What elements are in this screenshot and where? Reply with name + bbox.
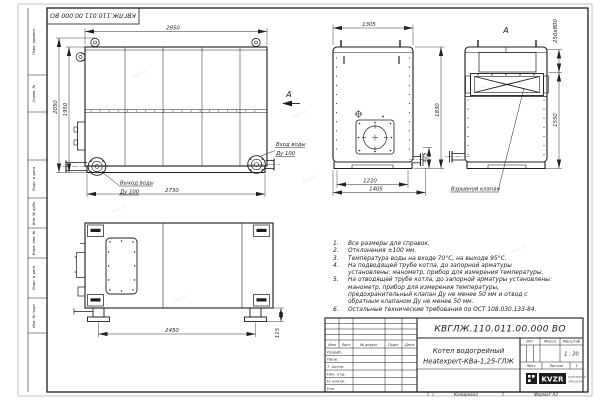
drawing-sheet: kvzr.ru kvzr.ru kvzr.ru kvzr.ru kvzr.ru … bbox=[0, 0, 600, 400]
tb-sheets-value: 1 bbox=[575, 364, 577, 368]
note-number: 6. bbox=[331, 307, 348, 314]
water-inlet-dn: Ду 100 bbox=[275, 151, 296, 157]
tb-h-scale: Масштаб bbox=[563, 340, 581, 344]
dim-side-width: 2850 bbox=[166, 26, 180, 32]
note-text: Остальные технические требования по ОСТ … bbox=[348, 307, 553, 314]
tb-row-utv: Утв. bbox=[327, 386, 335, 391]
dim-rear-flue: 250x800 bbox=[553, 19, 559, 43]
watermark-text: kvzr.ru bbox=[171, 293, 188, 305]
watermark-text: kvzr.ru bbox=[111, 203, 128, 215]
tb-h-lit: Лит. bbox=[525, 340, 534, 344]
view-a-arrow-label: А bbox=[285, 90, 291, 99]
tb-doc-number: КВГЛЖ.110.011.00.000 ВО bbox=[434, 325, 566, 335]
tb-row-tkontr: Т. контр. bbox=[327, 364, 345, 369]
tb-col-list: Лист bbox=[340, 343, 351, 347]
tb-h-mass: Масса bbox=[544, 340, 555, 344]
tb-col-sign: Подп. bbox=[388, 343, 399, 347]
dim-plan-foot: 115 bbox=[275, 327, 281, 338]
note-item: 4. На подводящей трубе котла, до запорно… bbox=[331, 263, 569, 278]
tb-product-name-line2: Heatexpert-КВа-1,25-ГЛЖ bbox=[423, 358, 514, 366]
note-item: 2. Отклонения ±100 мм. bbox=[331, 248, 569, 255]
tb-col-izm: Изм bbox=[328, 343, 336, 347]
bottom-zone-number: 1 bbox=[432, 393, 434, 397]
margin-label-perv-primen: Перв. примен. bbox=[32, 28, 36, 55]
dim-front-height: 1830 bbox=[435, 103, 441, 117]
dim-front-width: 1305 bbox=[362, 22, 376, 28]
dim-side-height-outer: 2050 bbox=[53, 100, 59, 114]
margin-label-podp-data-1: Подп. и дата bbox=[32, 167, 36, 191]
note-text: На отводящей трубе котла, до запорной ар… bbox=[348, 277, 553, 306]
note-number: 2. bbox=[331, 248, 348, 255]
watermark-text: kvzr.ru bbox=[471, 83, 488, 95]
note-text: Температура воды на входе 70°С, на выход… bbox=[348, 256, 553, 263]
water-outlet-label: Выход воды bbox=[120, 181, 154, 187]
view-a-title: А bbox=[502, 26, 508, 35]
dim-rear-height: 1550 bbox=[553, 113, 559, 127]
title-block: Изм Лист № докум. Подп. Дата Разраб. Про… bbox=[325, 318, 586, 392]
watermark-text: kvzr.ru bbox=[291, 108, 308, 120]
note-number: 1. bbox=[331, 241, 348, 248]
kvzr-logo-caption-2: ЗАВОД РФ bbox=[568, 379, 583, 383]
watermark-text: kvzr.ru bbox=[131, 68, 148, 80]
tb-row-nachotd: Нач. отд. bbox=[327, 371, 345, 376]
kvzr-logo: KVZR КОТЕЛЬНЫЙ ЗАВОД РФ bbox=[526, 373, 586, 384]
note-number: 5. bbox=[331, 277, 348, 306]
dim-side-base: 2730 bbox=[165, 188, 179, 194]
dim-side-height-inner: 1950 bbox=[63, 102, 69, 116]
margin-label-vzam-inv: Взам. инв. № bbox=[32, 231, 36, 256]
tb-sheets-label: Листов bbox=[548, 364, 562, 368]
tb-col-date: Дата bbox=[404, 343, 414, 347]
tb-col-doc: № докум. bbox=[359, 343, 378, 347]
kvzr-logo-text: KVZR bbox=[541, 376, 564, 384]
dim-plan-legs: 2450 bbox=[165, 328, 179, 334]
note-text: Отклонения ±100 мм. bbox=[348, 248, 553, 255]
dim-front-feet: 1220 bbox=[363, 179, 377, 185]
view-plan-boiler: 2450 115 bbox=[74, 223, 284, 338]
drawing-canvas: kvzr.ru kvzr.ru kvzr.ru kvzr.ru kvzr.ru … bbox=[0, 0, 600, 400]
margin-label-podp-data-2: Подп. и дата bbox=[32, 266, 36, 290]
tb-scale-value: 1 : 20 bbox=[564, 352, 578, 358]
technical-notes: 1. Все размеры для справок. 2. Отклонени… bbox=[331, 241, 569, 314]
note-item: 3. Температура воды на входе 70°С, на вы… bbox=[331, 256, 569, 263]
view-a-arrow bbox=[282, 101, 292, 107]
note-item: 6. Остальные технические требования по О… bbox=[331, 307, 569, 314]
note-text: Все размеры для справок. bbox=[348, 241, 553, 248]
note-number: 4. bbox=[331, 263, 348, 278]
margin-label-inv-dubl: Инв. № дубл. bbox=[32, 201, 36, 226]
tb-sheet-label: Лист bbox=[525, 364, 536, 368]
water-inlet-label: Вход воды bbox=[276, 142, 306, 148]
dim-front-stub: 425 bbox=[423, 152, 429, 163]
tb-product-name-line1: Котел водогрейный bbox=[433, 347, 505, 355]
note-item: 5. На отводящей трубе котла, до запорной… bbox=[331, 277, 569, 306]
dim-front-overall: 1405 bbox=[369, 187, 383, 193]
note-item: 1. Все размеры для справок. bbox=[331, 241, 569, 248]
explosion-valve-callout: Взрывной клапан bbox=[451, 187, 500, 193]
tb-row-prov: Пров. bbox=[327, 357, 338, 362]
watermark-text: kvzr.ru bbox=[301, 173, 318, 185]
view-front-boiler: 1305 1830 425 1220 1405 bbox=[333, 22, 444, 196]
tb-row-razrab: Разраб. bbox=[327, 349, 342, 354]
margin-label-sprav-no: Справ. № bbox=[32, 84, 36, 102]
view-side-boiler: 2850 2050 1950 2730 Выход воды Ду 100 Вх… bbox=[53, 26, 306, 198]
view-rear-boiler: А Взрывной клапан 250x800 bbox=[445, 19, 562, 193]
kvzr-logo-caption-1: КОТЕЛЬНЫЙ bbox=[568, 374, 586, 379]
note-number: 3. bbox=[331, 256, 348, 263]
water-outlet-dn: Ду 100 bbox=[119, 190, 140, 196]
top-stamp-doc-number: КВГЛЖ.110.011.00.000 ВО bbox=[50, 12, 136, 19]
note-text: На подводящей трубе котла, до запорной а… bbox=[348, 263, 553, 278]
tb-row-nkontr: Н. контр. bbox=[327, 379, 345, 384]
margin-label-inv-podl: Инв. № подл. bbox=[32, 303, 36, 328]
